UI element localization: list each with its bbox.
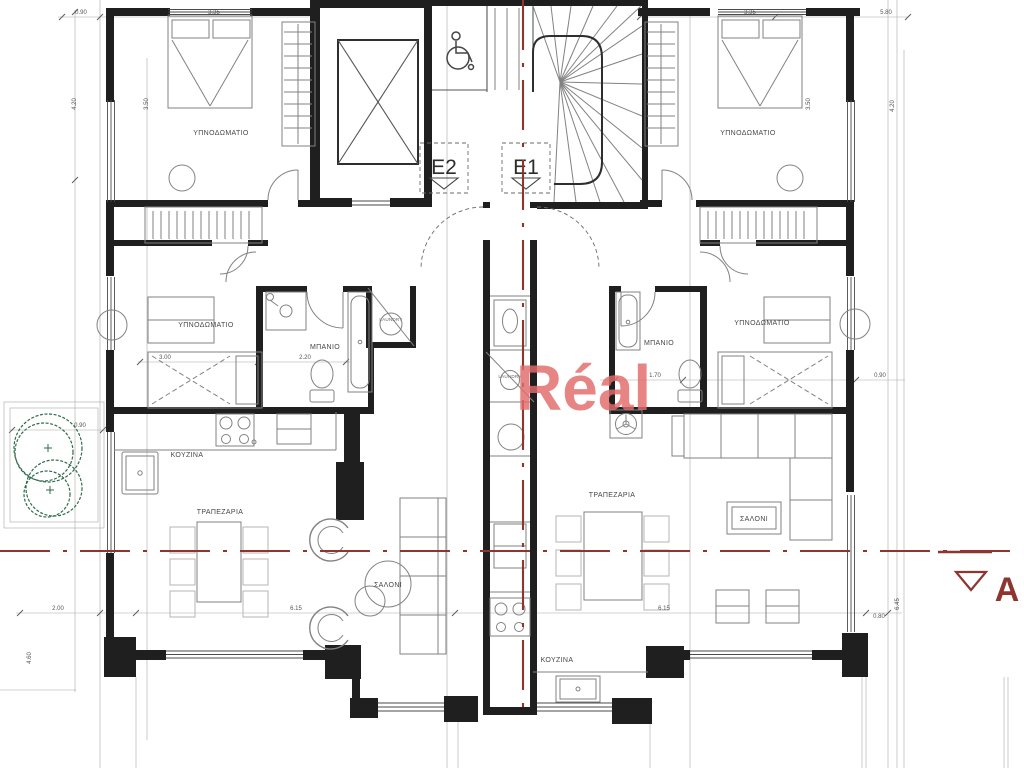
dim-left-depth: 4.20 bbox=[72, 98, 78, 110]
unit-e2-text: E2 bbox=[431, 156, 457, 179]
room-label-bathroom-right: ΜΠΑΝΙΟ bbox=[644, 340, 674, 347]
dim-left-height: 4.60 bbox=[27, 652, 33, 664]
dim-left-bed: 3.50 bbox=[144, 98, 150, 110]
floor-plan-page: E2 E1 bbox=[0, 0, 1024, 768]
room-label-bedroom1-right: ΥΠΝΟΔΩΜΑΤΙΟ bbox=[720, 130, 776, 137]
unit-e1-text: E1 bbox=[513, 156, 539, 179]
floor-plan: E2 E1 bbox=[0, 0, 1024, 768]
dim-mid-left-bath: 2.20 bbox=[299, 355, 311, 361]
dim-bottom-right-width: 6.15 bbox=[658, 606, 670, 612]
room-label-living-right: ΣΑΛΟΝΙ bbox=[740, 516, 768, 523]
room-label-bedroom2-left: ΥΠΝΟΔΩΜΑΤΙΟ bbox=[178, 322, 234, 329]
dim-top-right-width: 3.35 bbox=[744, 10, 756, 16]
room-label-bathroom-left: ΜΠΑΝΙΟ bbox=[310, 344, 340, 351]
dim-bottom-left-width: 6.15 bbox=[290, 606, 302, 612]
dim-mid-right-offset: 0.90 bbox=[874, 373, 886, 379]
dim-right-height: 6.45 bbox=[895, 598, 901, 610]
room-label-dining-left: ΤΡΑΠΕΖΑΡΙΑ bbox=[197, 509, 244, 516]
dim-top-left-width: 3.35 bbox=[208, 10, 220, 16]
dim-right-depth: 4.20 bbox=[890, 100, 896, 112]
section-marker-letter: A bbox=[995, 571, 1020, 609]
room-label-bedroom2-right: ΥΠΝΟΔΩΜΑΤΙΟ bbox=[734, 320, 790, 327]
watermark-logo: Réal bbox=[516, 352, 651, 424]
dim-top-left-offset: 0.90 bbox=[75, 10, 87, 16]
room-label-kitchen-left: ΚΟΥΖΙΝΑ bbox=[171, 452, 204, 459]
room-label-dining-right: ΤΡΑΠΕΖΑΡΙΑ bbox=[589, 492, 636, 499]
dim-bottom-right-offset: 0.80 bbox=[873, 614, 885, 620]
room-label-living-left: ΣΑΛΟΝΙ bbox=[374, 582, 402, 589]
dim-tree-offset: 0.90 bbox=[74, 423, 86, 429]
room-label-kitchen-right: ΚΟΥΖΙΝΑ bbox=[541, 657, 574, 664]
dim-mid-left-room: 3.00 bbox=[159, 355, 171, 361]
room-label-laundry-left: LAUNDRY bbox=[379, 317, 402, 322]
dim-right-bed: 3.50 bbox=[806, 98, 812, 110]
dim-top-right-total: 5.80 bbox=[880, 10, 892, 16]
dim-bottom-terrace: 2.00 bbox=[52, 606, 64, 612]
room-label-bedroom1-left: ΥΠΝΟΔΩΜΑΤΙΟ bbox=[193, 130, 249, 137]
